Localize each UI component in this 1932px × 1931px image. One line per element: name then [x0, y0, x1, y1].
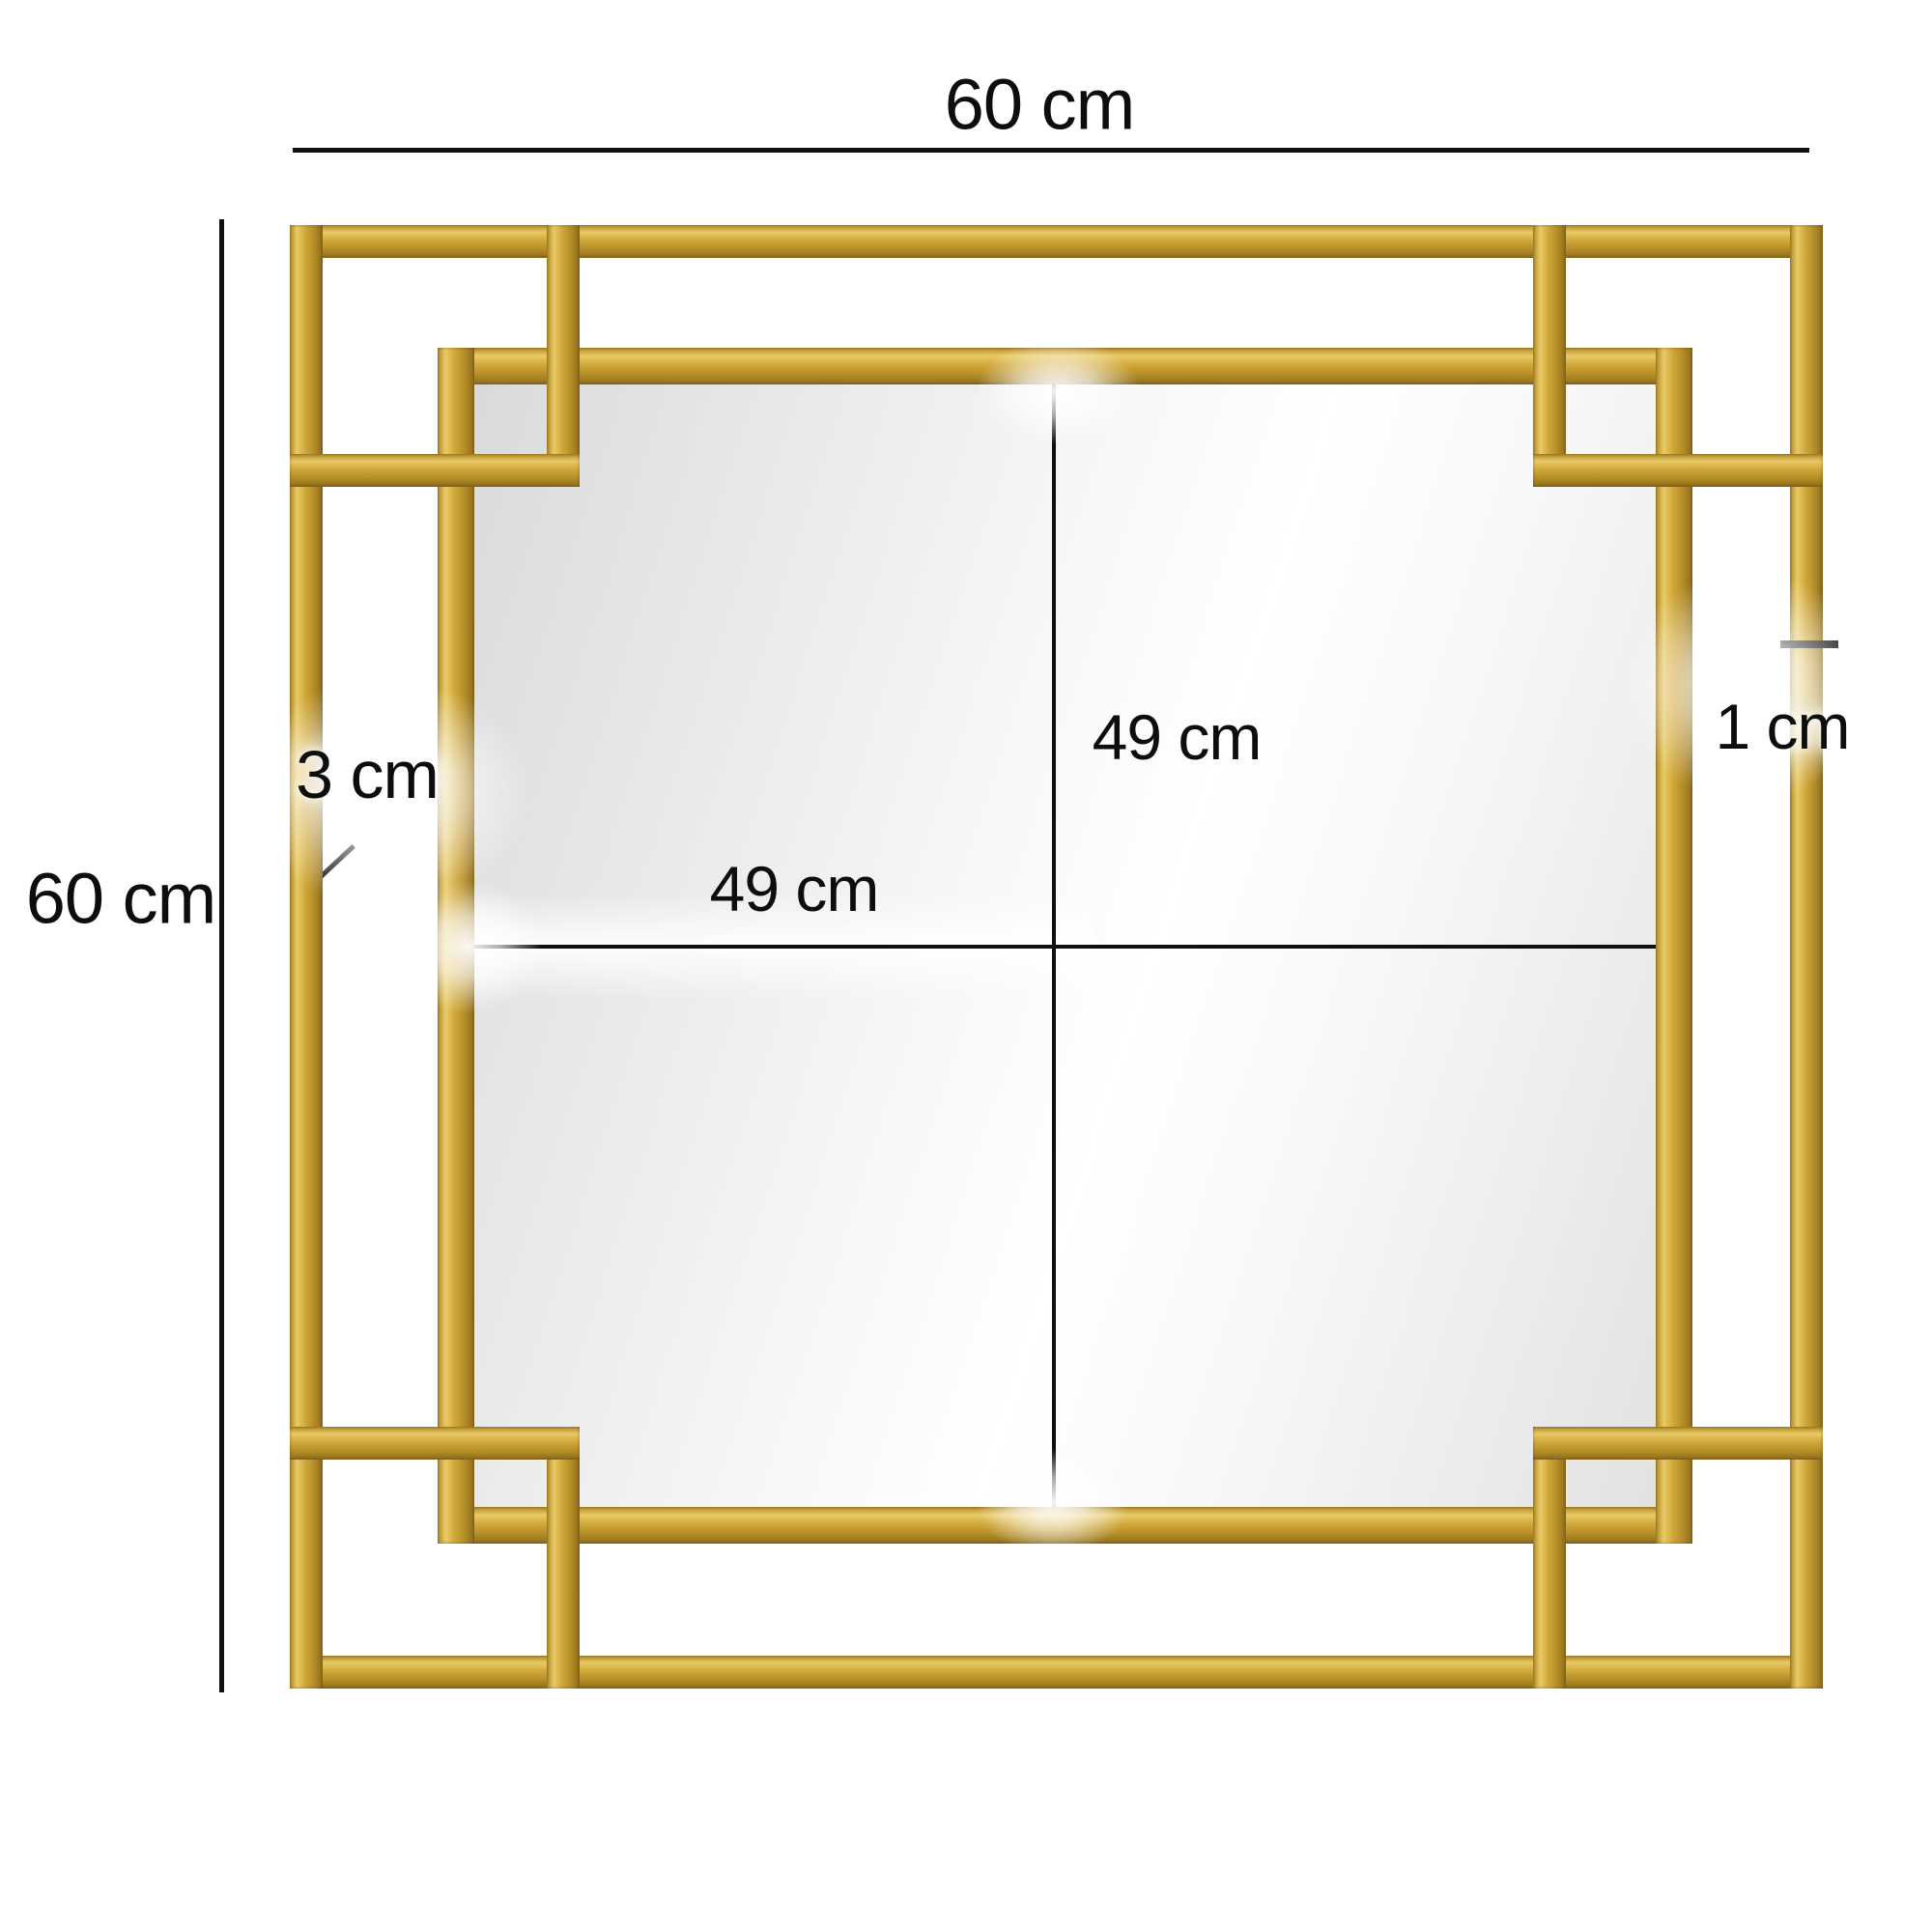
corner-square-bottom-left-horizontal-bar [290, 1427, 580, 1460]
outer-frame-bottom-bar [290, 1656, 1823, 1689]
frame-depth-label: 3 cm [296, 736, 439, 813]
dimension-diagram: 60 cm 60 cm 49 cm 49 cm 3 cm 1 cm [0, 0, 1932, 1931]
inner-frame-left-bar [438, 348, 474, 1544]
corner-square-top-left-vertical-bar [547, 225, 580, 487]
bar-thickness-tick [1780, 640, 1838, 648]
inner-frame-bottom-bar [438, 1507, 1692, 1544]
corner-square-top-right-horizontal-bar [1533, 454, 1823, 487]
outer-frame-left-bar [290, 225, 323, 1689]
left-height-dimension-line [219, 219, 224, 1692]
mirror-width-label: 49 cm [710, 852, 879, 925]
mirror-height-label: 49 cm [1093, 700, 1262, 774]
outer-frame-right-bar [1790, 225, 1823, 1689]
mirror-width-dimension-line [474, 945, 1656, 949]
corner-square-bottom-left-vertical-bar [547, 1427, 580, 1689]
left-height-label: 60 cm [26, 858, 216, 940]
corner-square-top-right-vertical-bar [1533, 225, 1566, 487]
top-width-dimension-line [293, 148, 1809, 153]
outer-frame-top-bar [290, 225, 1823, 258]
corner-square-bottom-right-vertical-bar [1533, 1427, 1566, 1689]
corner-square-bottom-right-horizontal-bar [1533, 1427, 1823, 1460]
bar-thickness-label: 1 cm [1715, 690, 1849, 763]
inner-frame-top-bar [438, 348, 1692, 384]
top-width-label: 60 cm [945, 64, 1135, 146]
corner-square-top-left-horizontal-bar [290, 454, 580, 487]
inner-frame-right-bar [1656, 348, 1692, 1544]
